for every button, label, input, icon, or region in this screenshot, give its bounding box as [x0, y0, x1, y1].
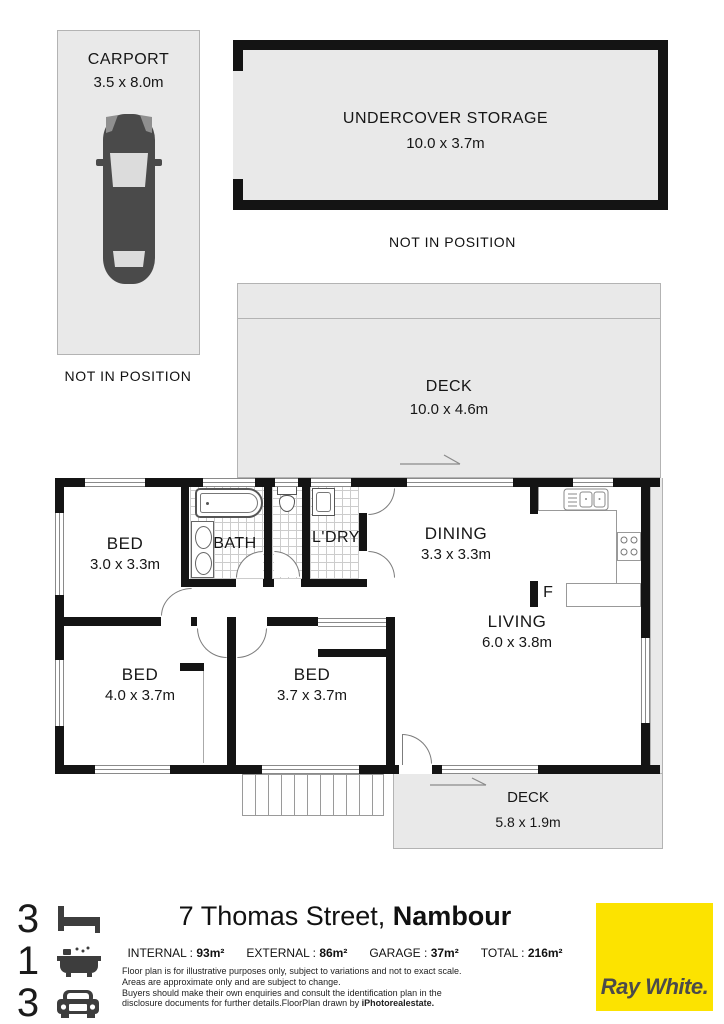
- car-top-view-icon: [96, 111, 162, 287]
- wall-segment: [359, 478, 367, 487]
- wall-segment: [641, 478, 650, 774]
- storage-label: UNDERCOVER STORAGE: [233, 108, 658, 130]
- area-stats: INTERNAL : 93m² EXTERNAL : 86m² GARAGE :…: [105, 946, 585, 960]
- car-spaces-count: 3: [14, 983, 42, 1023]
- room-dims: 6.0 x 3.8m: [453, 632, 581, 653]
- disclaimer-line: Floor plan is for illustrative purposes …: [122, 966, 542, 977]
- storage-dims: 10.0 x 3.7m: [233, 134, 658, 154]
- window: [85, 478, 145, 487]
- room-label-living: LIVING 6.0 x 3.8m: [453, 611, 581, 653]
- disclaimer-line: disclosure documents for further details…: [122, 998, 542, 1009]
- door-arc: [402, 734, 432, 764]
- bathrooms-row: 1: [14, 940, 103, 981]
- wall-segment: [181, 579, 236, 587]
- undercover-storage-area: UNDERCOVER STORAGE 10.0 x 3.7m: [233, 40, 668, 210]
- bathtub: [195, 488, 263, 518]
- window: [262, 765, 359, 774]
- storage-wall-tab: [233, 179, 243, 200]
- door-swing-arrow-icon: [428, 776, 492, 790]
- room-dims: 3.7 x 3.7m: [248, 685, 376, 706]
- deck-bottom-label: DECK: [394, 788, 662, 808]
- stat-garage: GARAGE : 37m²: [369, 946, 458, 960]
- window: [203, 478, 255, 487]
- window: [573, 478, 613, 487]
- cooktop: [617, 532, 641, 561]
- room-dims: 3.0 x 3.3m: [65, 554, 185, 575]
- window: [442, 765, 538, 774]
- carport-dims: 3.5 x 8.0m: [58, 73, 199, 93]
- deck-top-label: DECK: [238, 376, 660, 398]
- room-label-bed3: BED 3.7 x 3.7m: [248, 664, 376, 706]
- room-name: BED: [65, 533, 185, 554]
- door-arc: [368, 551, 395, 578]
- kitchen-bench: [566, 583, 641, 607]
- bed-icon: [55, 903, 103, 935]
- wall-segment: [267, 617, 318, 626]
- kitchen-sink: [563, 488, 609, 511]
- property-summary-icons: 3 1 3: [14, 898, 103, 1023]
- car-icon: [55, 988, 101, 1018]
- drawn-by-credit: iPhotorealestate.: [362, 998, 435, 1008]
- room-dims: 3.3 x 3.3m: [398, 544, 514, 565]
- carport-area: CARPORT 3.5 x 8.0m: [57, 30, 200, 355]
- door-arc: [237, 628, 267, 658]
- address-suburb: Nambour: [393, 901, 512, 931]
- wall-segment: [55, 617, 161, 626]
- laundry-tub: [312, 488, 335, 516]
- wall-segment: [386, 617, 395, 765]
- window: [407, 478, 513, 487]
- stat-total: TOTAL : 216m²: [481, 946, 563, 960]
- ray-white-logo: Ray White.: [596, 903, 713, 1011]
- window: [641, 638, 650, 723]
- wall-segment: [263, 579, 274, 587]
- floorplan-page: CARPORT 3.5 x 8.0m NOT IN POSITION UNDER…: [0, 0, 724, 1024]
- carport-label: CARPORT: [58, 49, 199, 71]
- deck-side-strip: [650, 478, 663, 774]
- wall-segment: [55, 478, 660, 487]
- wall-segment: [530, 487, 538, 514]
- brand-name: Ray White.: [601, 974, 708, 1011]
- wall-segment: [227, 617, 236, 765]
- room-name: LIVING: [453, 611, 581, 632]
- disclaimer-line: Buyers should make their own enquiries a…: [122, 988, 542, 999]
- bedrooms-row: 3: [14, 898, 103, 939]
- door-opening: [399, 765, 432, 774]
- storage-note: NOT IN POSITION: [360, 234, 545, 250]
- room-label-dining: DINING 3.3 x 3.3m: [398, 523, 514, 565]
- stat-external: EXTERNAL : 86m²: [246, 946, 347, 960]
- window: [275, 478, 298, 487]
- door-arc: [368, 488, 395, 515]
- deck-top-dims: 10.0 x 4.6m: [238, 400, 660, 420]
- door-arc: [161, 588, 192, 616]
- kitchen-counter-edge: [538, 487, 540, 511]
- carport-note: NOT IN POSITION: [40, 368, 216, 384]
- window: [55, 660, 64, 726]
- deck-bottom-dims: 5.8 x 1.9m: [394, 812, 662, 832]
- deck-edge-line: [238, 318, 660, 319]
- stat-internal: INTERNAL : 93m²: [127, 946, 224, 960]
- window: [95, 765, 170, 774]
- wall-segment: [301, 579, 367, 587]
- disclaimer-line: Areas are approximate only and are subje…: [122, 977, 542, 988]
- bedrooms-count: 3: [14, 899, 42, 939]
- room-label-laundry: L'DRY: [310, 527, 362, 548]
- door-arc: [197, 628, 227, 658]
- fridge-label: F: [535, 584, 561, 602]
- storage-wall-tab: [233, 50, 243, 71]
- window: [311, 478, 351, 487]
- bathtub-icon: [55, 944, 103, 978]
- room-label-bath: BATH: [196, 533, 274, 554]
- address-street: 7 Thomas Street,: [179, 901, 386, 931]
- car-spaces-row: 3: [14, 982, 103, 1023]
- room-name: DINING: [398, 523, 514, 544]
- toilet-cistern: [277, 486, 297, 495]
- room-label-bed1: BED 3.0 x 3.3m: [65, 533, 185, 575]
- wall-segment: [318, 649, 395, 657]
- door-swing-arrow-icon: [398, 452, 466, 470]
- window: [318, 618, 386, 627]
- wall-segment: [302, 478, 310, 587]
- room-label-bed2: BED 4.0 x 3.7m: [72, 664, 208, 706]
- disclaimer: Floor plan is for illustrative purposes …: [122, 966, 542, 1009]
- stairs: [242, 774, 384, 816]
- bathrooms-count: 1: [14, 941, 42, 981]
- window: [55, 513, 64, 595]
- room-name: BED: [72, 664, 208, 685]
- property-address: 7 Thomas Street, Nambour: [110, 901, 580, 932]
- room-name: BED: [248, 664, 376, 685]
- wall-segment: [191, 617, 197, 626]
- room-dims: 4.0 x 3.7m: [72, 685, 208, 706]
- deck-top-area: DECK 10.0 x 4.6m: [237, 283, 661, 478]
